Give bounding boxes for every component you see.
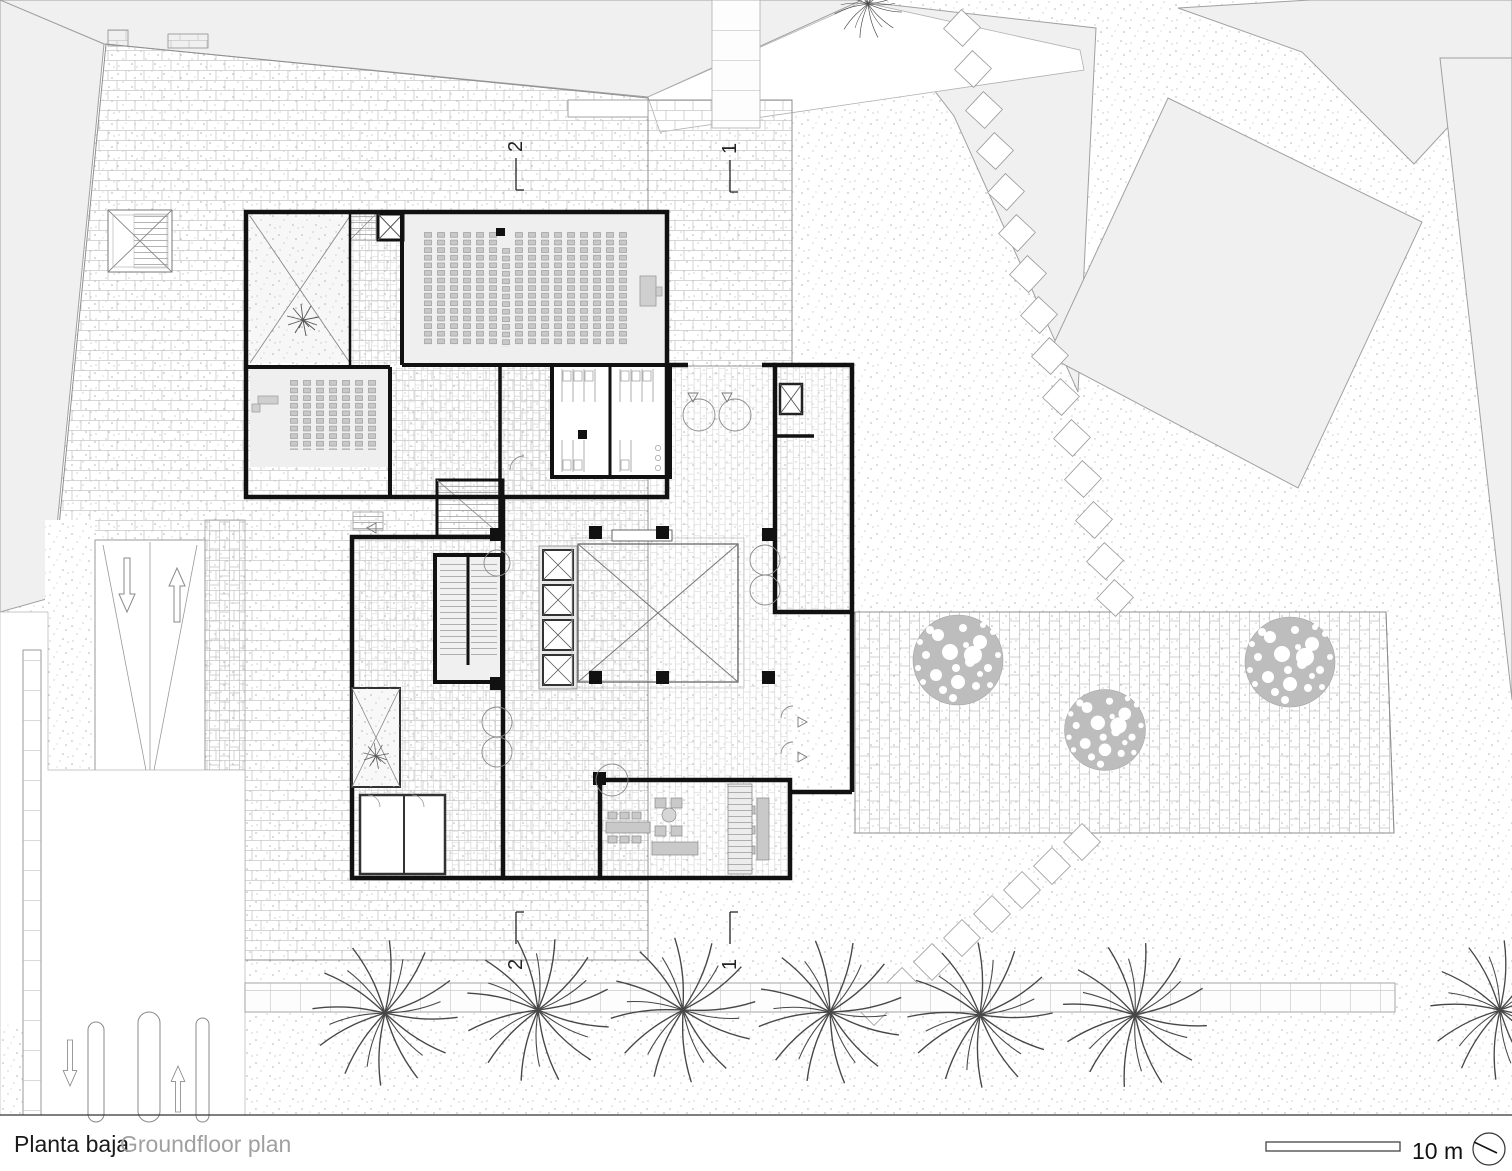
entry-vestibule	[775, 365, 852, 612]
paver-path-north-joints	[712, 0, 760, 128]
lower-patio	[352, 688, 400, 787]
vehicle-ramp	[45, 520, 245, 792]
canopy-tree-1	[913, 615, 1003, 705]
ramp-margin-texture	[45, 520, 95, 792]
section-label: 2	[505, 141, 527, 152]
title-block: Planta baja Groundfloor plan 10 m	[0, 1115, 1512, 1165]
classroom	[250, 367, 390, 467]
section-label: 1	[719, 959, 741, 970]
section-label: 2	[505, 959, 527, 970]
upper-corridor-floor-2	[390, 367, 550, 497]
auditorium-lectern	[640, 276, 656, 306]
skylight-grate	[108, 210, 172, 272]
north-arrow-icon	[1473, 1133, 1505, 1165]
caption-secondary: Groundfloor plan	[120, 1131, 291, 1157]
auditorium	[402, 212, 667, 365]
caption-primary: Planta baja	[14, 1131, 129, 1157]
floorplan-sheet: 2 1 2 1 Planta baja Groundfloor plan 10 …	[0, 0, 1512, 1171]
plaza-bench	[568, 100, 648, 117]
wing-rooms	[360, 795, 445, 874]
classroom-desk	[258, 396, 278, 404]
scale-bar: 10 m	[1266, 1138, 1463, 1164]
upper-elevator	[378, 214, 403, 240]
canopy-tree-3	[1245, 617, 1335, 707]
canopy-tree-2	[1065, 690, 1146, 771]
elevator-bank	[539, 546, 577, 689]
auditorium-speck	[496, 228, 505, 236]
entrance-patio	[250, 216, 350, 363]
ramp-brick-strip	[205, 520, 245, 792]
upper-stair-core	[350, 214, 376, 240]
toilets	[552, 365, 670, 477]
street-paver-strip-joints	[23, 650, 41, 1115]
floor-plan-drawing: 2 1 2 1 Planta baja Groundfloor plan 10 …	[0, 0, 1512, 1171]
main-stair-core	[435, 555, 502, 682]
street-verge	[0, 1025, 23, 1115]
scale-label: 10 m	[1412, 1138, 1463, 1164]
toilet-duct	[578, 430, 587, 439]
section-label: 1	[719, 143, 741, 154]
